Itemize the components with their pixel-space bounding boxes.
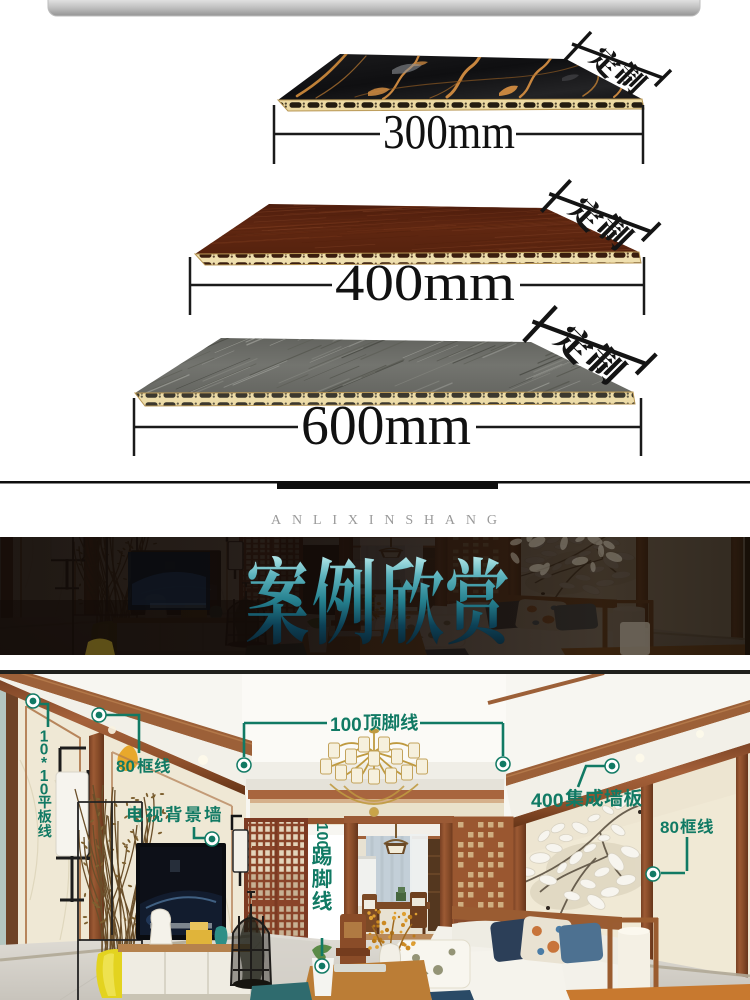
svg-text:80: 80 — [660, 818, 679, 837]
svg-text:80: 80 — [116, 757, 135, 776]
svg-text:100: 100 — [313, 823, 330, 850]
svg-text:100: 100 — [330, 715, 362, 736]
svg-text:300mm: 300mm — [383, 104, 515, 159]
svg-text:400mm: 400mm — [335, 255, 515, 312]
svg-text:400: 400 — [531, 790, 564, 812]
svg-text:0: 0 — [40, 781, 49, 798]
svg-text:600mm: 600mm — [301, 395, 471, 457]
